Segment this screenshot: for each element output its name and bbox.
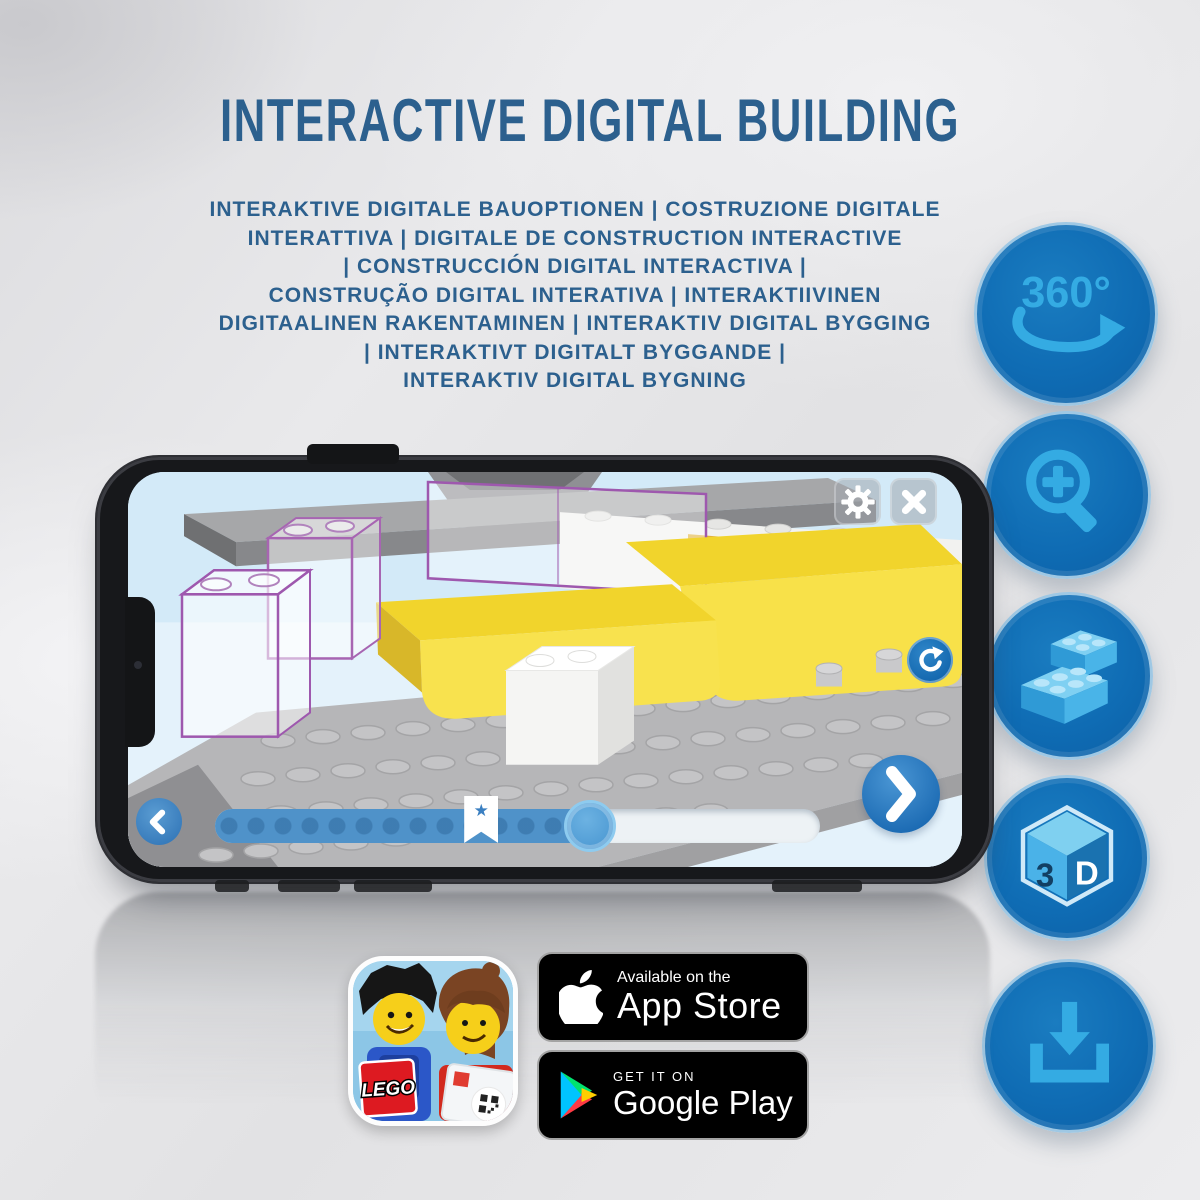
- phone-screen: ★: [128, 472, 962, 867]
- svg-text:360°: 360°: [1021, 269, 1111, 317]
- app-store-name: App Store: [617, 987, 782, 1025]
- svg-text:3: 3: [1036, 857, 1054, 894]
- feature-zoom: [983, 411, 1151, 579]
- feature-3d-view: 3 D: [984, 775, 1150, 941]
- page-title: INTERACTIVE DIGITAL BUILDING: [159, 86, 1020, 155]
- close-button[interactable]: [890, 478, 937, 525]
- qr-card: [441, 1063, 513, 1121]
- lego-logo: LEGO: [359, 1059, 417, 1117]
- phone-volume-button: [354, 880, 432, 892]
- phone-mockup: ★: [95, 455, 994, 884]
- gear-icon: [840, 484, 876, 520]
- star-icon: ★: [474, 801, 489, 821]
- close-icon: [897, 485, 931, 519]
- phone-volume-button: [278, 880, 340, 892]
- 3d-cube-icon: 3 D: [1012, 803, 1122, 913]
- phone-camera-dot: [134, 661, 142, 669]
- slider-handle[interactable]: [564, 800, 616, 852]
- svg-text:LEGO: LEGO: [361, 1077, 416, 1102]
- white-brick: [506, 646, 634, 764]
- google-play-name: Google Play: [613, 1085, 793, 1121]
- feature-brick-options: [985, 592, 1153, 760]
- download-icon: [1011, 988, 1127, 1104]
- phone-power-button: [772, 880, 862, 892]
- ghost-slab: [428, 482, 706, 594]
- rotate-360-icon: 360°: [1002, 257, 1130, 371]
- brick-stack-icon: [1012, 619, 1126, 733]
- lego-3d-scene: [128, 472, 962, 867]
- apple-logo-icon: [559, 970, 603, 1024]
- slider-fill: [215, 809, 590, 843]
- google-play-tagline: GET IT ON: [613, 1069, 793, 1085]
- lower-brick: [1021, 667, 1108, 724]
- rotate-view-button[interactable]: [907, 637, 953, 683]
- next-step-button[interactable]: [862, 755, 940, 833]
- zoom-in-icon: [1011, 439, 1123, 551]
- settings-button[interactable]: [834, 478, 881, 525]
- lego-app-icon[interactable]: LEGO: [348, 956, 518, 1126]
- previous-step-button[interactable]: [136, 798, 182, 845]
- svg-text:D: D: [1075, 854, 1099, 891]
- subtitle-line: INTERAKTIV DIGITAL BYGNING: [0, 367, 1150, 396]
- subtitle-line: INTERAKTIVE DIGITALE BAUOPTIONEN | COSTR…: [0, 196, 1150, 225]
- poster: INTERACTIVE DIGITAL BUILDING INTERAKTIVE…: [0, 0, 1200, 1200]
- rotate-view-icon: [914, 644, 946, 676]
- chevron-left-icon: [142, 805, 176, 839]
- feature-download: [982, 959, 1156, 1133]
- feature-360-rotation: 360°: [974, 222, 1158, 406]
- build-progress-slider[interactable]: ★: [215, 809, 820, 843]
- app-store-badge[interactable]: Available on the App Store: [537, 952, 809, 1042]
- phone-mute-switch: [215, 880, 249, 892]
- phone-side-button: [307, 444, 399, 464]
- phone-notch: [125, 597, 155, 747]
- google-play-badge[interactable]: GET IT ON Google Play: [537, 1050, 809, 1140]
- app-icon-art: LEGO: [353, 961, 513, 1121]
- subtitle-line: INTERATTIVA | DIGITALE DE CONSTRUCTION I…: [0, 225, 1150, 254]
- subtitle-line: | CONSTRUCCIÓN DIGITAL INTERACTIVA |: [0, 253, 1150, 282]
- subtitle-line: | INTERAKTIVT DIGITALT BYGGANDE |: [0, 339, 1150, 368]
- ghost-brick: [182, 570, 310, 736]
- google-play-logo-icon: [559, 1070, 599, 1120]
- chevron-right-icon: [862, 755, 940, 833]
